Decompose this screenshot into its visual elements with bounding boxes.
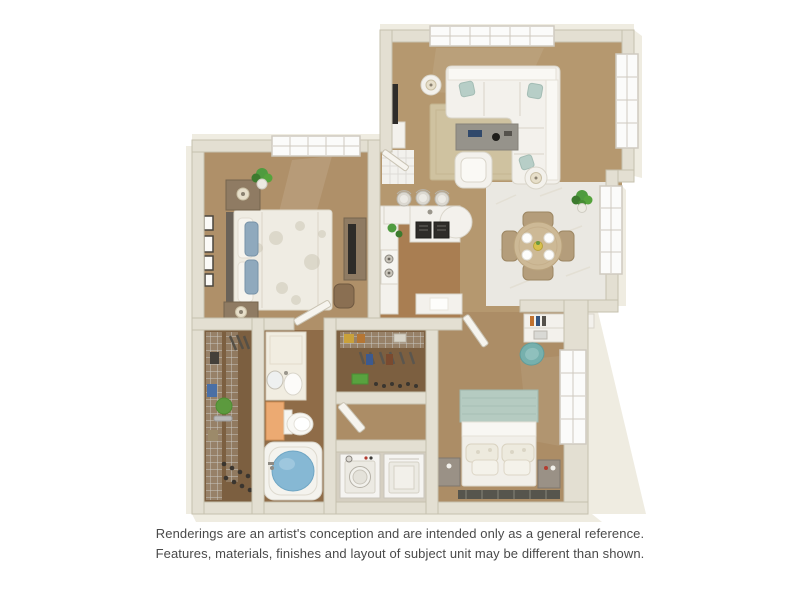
washer-dial bbox=[346, 456, 352, 462]
place-setting bbox=[522, 250, 532, 260]
dryer bbox=[384, 454, 424, 498]
wall-interior-a2 bbox=[334, 318, 462, 330]
disclaimer-text: Renderings are an artist's conception an… bbox=[0, 524, 800, 564]
side-table-lamp-right bbox=[525, 167, 547, 189]
disclaimer-line-2: Features, materials, finishes and layout… bbox=[0, 544, 800, 564]
window-master-top bbox=[272, 136, 360, 156]
place-setting bbox=[544, 250, 554, 260]
book bbox=[530, 316, 534, 326]
bath-water bbox=[272, 451, 314, 491]
window-bedroom2-right bbox=[560, 350, 586, 444]
faucet bbox=[284, 371, 288, 375]
vanity bbox=[266, 332, 306, 400]
nightstand-top bbox=[226, 180, 260, 210]
tv-screen bbox=[348, 224, 356, 274]
tv-screen bbox=[392, 84, 398, 124]
sink bbox=[284, 373, 302, 395]
place-setting bbox=[522, 233, 532, 243]
wall-bath-right bbox=[324, 318, 336, 514]
faucet bbox=[428, 210, 433, 215]
book bbox=[536, 316, 540, 326]
side-table-lamp-left bbox=[421, 75, 441, 95]
pillow bbox=[502, 444, 534, 462]
nightstand-left bbox=[438, 458, 460, 486]
wall-bottom bbox=[192, 502, 588, 514]
disclaimer-line-1: Renderings are an artist's conception an… bbox=[0, 524, 800, 544]
tub-faucet bbox=[268, 462, 274, 465]
coffee-table bbox=[456, 124, 518, 150]
master-bed bbox=[226, 210, 332, 310]
counter-plant bbox=[396, 231, 403, 238]
wall-laundry-top bbox=[336, 440, 426, 452]
bed bbox=[460, 390, 538, 486]
peninsula-counter bbox=[416, 294, 462, 314]
teal-pillow bbox=[459, 81, 476, 98]
floor-plan-page: Renderings are an artist's conception an… bbox=[0, 0, 800, 600]
green-ottoman bbox=[216, 398, 232, 414]
orange-cabinet bbox=[266, 402, 284, 440]
wall-closet2-bottom bbox=[336, 392, 426, 404]
pillow bbox=[472, 460, 498, 475]
blue-pillow bbox=[245, 260, 258, 294]
tray bbox=[214, 416, 232, 421]
dresser-with-tv bbox=[344, 218, 366, 280]
window-living-right bbox=[616, 54, 638, 148]
wall-bath-left bbox=[252, 318, 264, 514]
book bbox=[542, 316, 546, 326]
armchair bbox=[455, 152, 492, 188]
laptop bbox=[534, 331, 547, 339]
bathtub bbox=[264, 442, 322, 500]
pillow bbox=[466, 444, 498, 462]
wall-bedroom2-left bbox=[426, 330, 438, 514]
teal-pillow bbox=[527, 83, 543, 99]
place-setting bbox=[544, 233, 554, 243]
wall-interior-a1 bbox=[192, 318, 294, 330]
window-living-top bbox=[430, 26, 554, 46]
round-mirror bbox=[267, 371, 283, 389]
blue-pillow bbox=[245, 222, 258, 256]
bar-stools bbox=[397, 190, 449, 206]
floor-plan-rendering bbox=[0, 0, 800, 600]
wall-master-right bbox=[368, 140, 380, 330]
pillow bbox=[504, 460, 530, 475]
dark-rug bbox=[458, 490, 560, 499]
window-dining-right bbox=[600, 186, 622, 274]
green-box bbox=[352, 374, 368, 384]
wall-frames bbox=[204, 216, 213, 286]
nightstand-right bbox=[538, 460, 560, 488]
stove bbox=[381, 250, 398, 284]
counter-plant bbox=[388, 224, 397, 233]
washer bbox=[340, 454, 380, 498]
accent-chair bbox=[334, 284, 354, 308]
wall-living-left bbox=[380, 30, 392, 152]
